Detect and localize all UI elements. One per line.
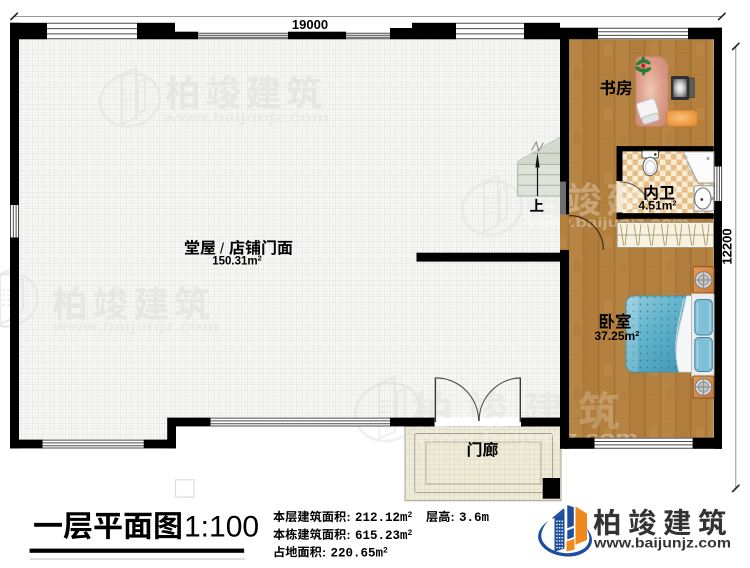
svg-text:12200: 12200 <box>720 228 735 264</box>
svg-text::: : <box>322 545 326 559</box>
svg-text:220.65m2: 220.65m2 <box>331 546 389 560</box>
svg-text:150.31m2: 150.31m2 <box>212 254 262 268</box>
svg-text:212.12m2: 212.12m2 <box>355 511 413 525</box>
svg-text:19000: 19000 <box>292 17 328 32</box>
svg-text:37.25m2: 37.25m2 <box>595 329 640 343</box>
svg-text:www.baijunjz.com: www.baijunjz.com <box>52 319 219 334</box>
svg-text:www.baijunjz.com: www.baijunjz.com <box>162 110 329 125</box>
svg-text:www.baijunjz.com: www.baijunjz.com <box>593 536 731 551</box>
svg-text:4.51m2: 4.51m2 <box>638 199 676 213</box>
svg-text::: : <box>347 528 351 542</box>
svg-text:1:100: 1:100 <box>184 511 259 544</box>
svg-text:615.23m2: 615.23m2 <box>355 529 413 543</box>
svg-text::: : <box>347 510 351 524</box>
svg-text::: : <box>451 510 455 524</box>
svg-text:3.6m: 3.6m <box>459 511 490 525</box>
